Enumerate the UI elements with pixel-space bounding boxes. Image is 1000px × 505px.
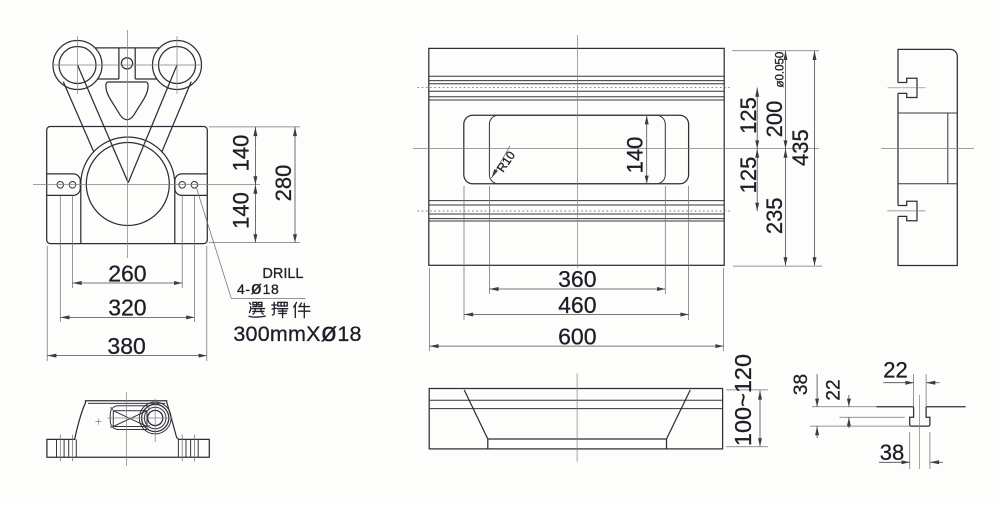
svg-text:DRILL: DRILL <box>262 266 303 282</box>
svg-text:22: 22 <box>883 358 907 383</box>
svg-text:200: 200 <box>762 101 787 138</box>
svg-text:ø0.050: ø0.050 <box>775 52 787 88</box>
svg-text:125: 125 <box>736 97 761 134</box>
svg-text:125: 125 <box>736 157 761 194</box>
svg-text:140: 140 <box>228 135 253 172</box>
svg-text:600: 600 <box>558 324 596 350</box>
svg-text:435: 435 <box>788 129 813 166</box>
svg-text:460: 460 <box>558 292 596 318</box>
svg-text:38: 38 <box>880 440 904 465</box>
svg-text:100~120: 100~120 <box>730 354 756 446</box>
svg-text:280: 280 <box>271 165 296 202</box>
svg-text:380: 380 <box>107 333 145 359</box>
svg-text:22: 22 <box>824 379 845 400</box>
svg-text:300mmXø18: 300mmXø18 <box>233 317 361 347</box>
svg-text:38: 38 <box>791 374 812 395</box>
svg-text:140: 140 <box>622 137 647 174</box>
svg-text:260: 260 <box>108 260 146 286</box>
svg-text:320: 320 <box>108 295 146 321</box>
svg-text:235: 235 <box>762 197 787 234</box>
svg-text:360: 360 <box>558 266 596 292</box>
svg-text:4-ø18: 4-ø18 <box>237 277 279 298</box>
svg-text:140: 140 <box>228 192 253 229</box>
